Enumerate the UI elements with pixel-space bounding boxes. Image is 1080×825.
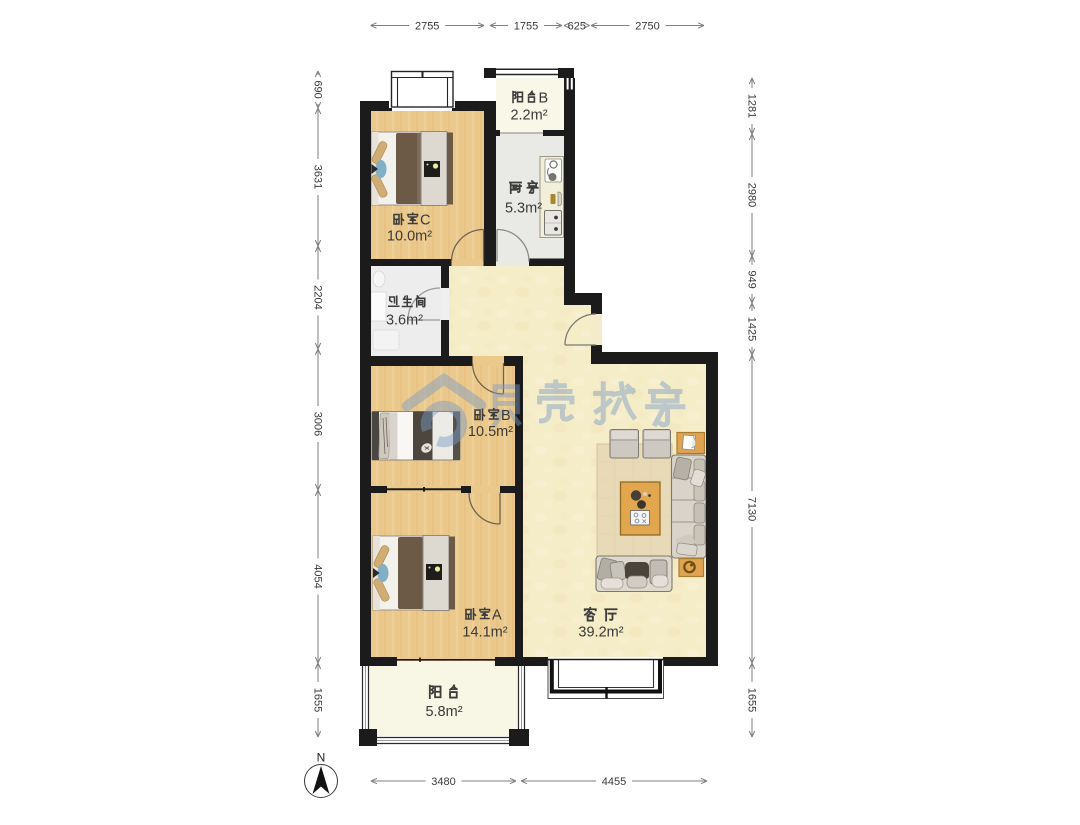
svg-text:2204: 2204 [312,285,324,309]
svg-text:625: 625 [568,21,586,33]
svg-text:4455: 4455 [602,776,626,788]
svg-text:10.5m²: 10.5m² [468,424,513,440]
svg-text:1655: 1655 [312,688,324,712]
svg-text:B: B [539,91,549,107]
svg-text:B: B [501,408,511,424]
svg-text:14.1m²: 14.1m² [462,625,507,641]
svg-text:1655: 1655 [746,688,758,712]
svg-text:2980: 2980 [746,183,758,207]
svg-text:3.6m²: 3.6m² [386,313,423,329]
svg-text:690: 690 [312,80,324,98]
svg-text:1755: 1755 [514,21,538,33]
svg-text:5.8m²: 5.8m² [425,704,462,720]
svg-text:39.2m²: 39.2m² [578,625,623,641]
svg-text:3006: 3006 [312,412,324,436]
svg-text:C: C [420,213,430,229]
svg-text:3480: 3480 [431,776,455,788]
svg-text:1425: 1425 [746,317,758,341]
svg-text:3631: 3631 [312,165,324,189]
svg-text:2750: 2750 [635,21,659,33]
svg-text:5.3m²: 5.3m² [505,201,542,217]
svg-text:2755: 2755 [415,21,439,33]
svg-text:10.0m²: 10.0m² [387,229,432,245]
svg-text:A: A [492,608,502,624]
svg-text:N: N [317,751,326,765]
svg-text:949: 949 [746,270,758,288]
svg-text:7130: 7130 [746,497,758,521]
svg-text:2.2m²: 2.2m² [510,108,547,124]
svg-text:4054: 4054 [312,564,324,588]
svg-text:1281: 1281 [746,94,758,118]
